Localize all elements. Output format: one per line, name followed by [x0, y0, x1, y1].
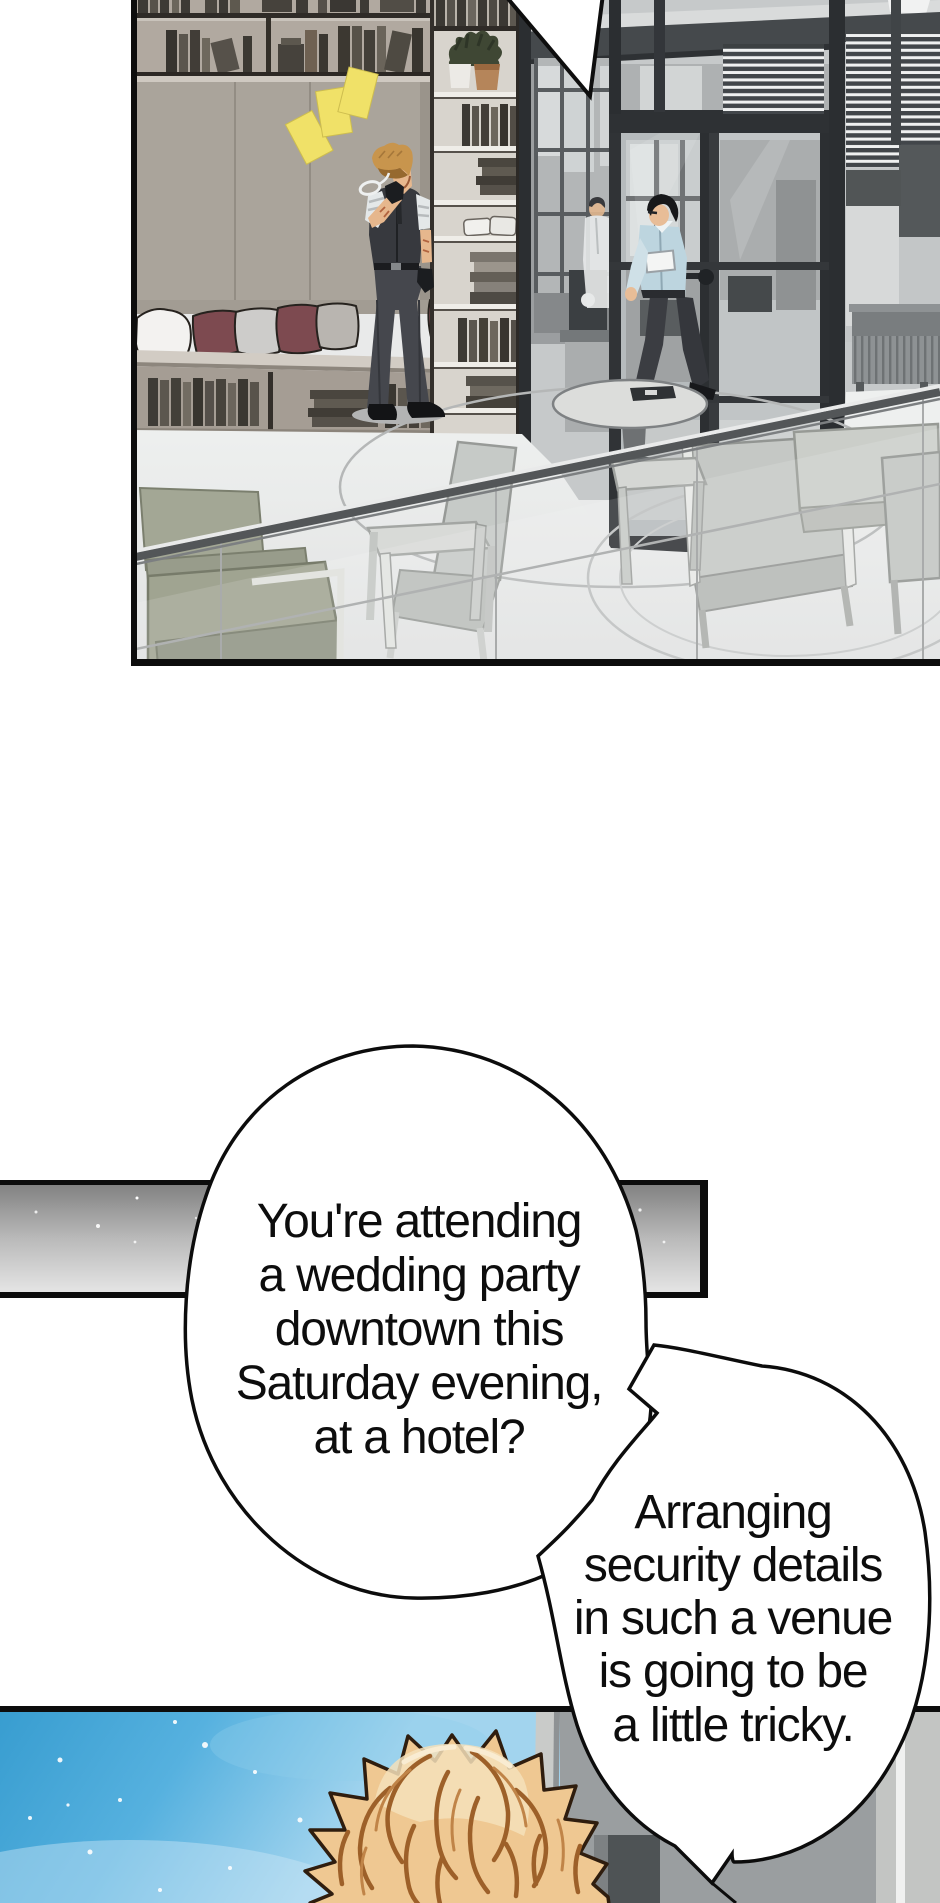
svg-text:downtown this: downtown this: [275, 1303, 564, 1356]
svg-text:in such a venue: in such a venue: [574, 1592, 892, 1645]
svg-text:Arranging: Arranging: [634, 1486, 831, 1539]
svg-text:security details: security details: [584, 1539, 882, 1592]
svg-text:a little tricky.: a little tricky.: [612, 1699, 853, 1752]
svg-text:a wedding party: a wedding party: [259, 1249, 581, 1302]
svg-text:Saturday evening,: Saturday evening,: [236, 1357, 603, 1410]
svg-text:is going to be: is going to be: [599, 1645, 868, 1698]
svg-text:at a hotel?: at a hotel?: [314, 1411, 525, 1464]
svg-text:You're attending: You're attending: [257, 1195, 582, 1248]
